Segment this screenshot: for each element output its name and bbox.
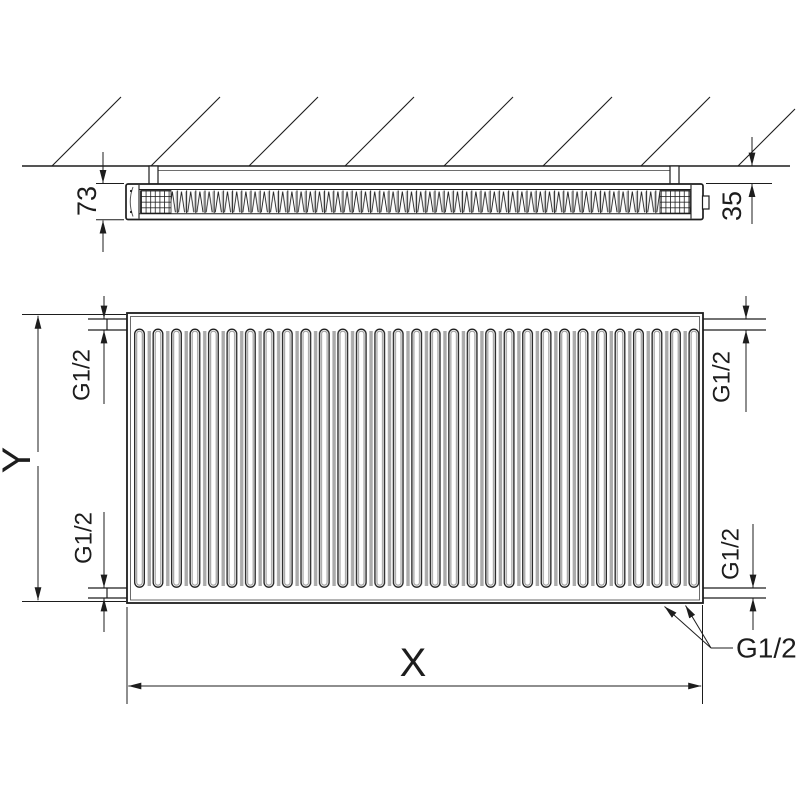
radiator-top-profile [126, 184, 709, 220]
thread-leader [665, 606, 734, 649]
dimension-wall-distance-label: 35 [717, 191, 747, 221]
thread-label-top-right: G1/2 [709, 351, 736, 403]
drawing-canvas: 73 35 [0, 0, 800, 800]
wall-hatching [52, 97, 795, 166]
top-view: 73 35 [22, 97, 795, 252]
radiator-technical-drawing: 73 35 [0, 0, 800, 800]
dimension-depth-label: 73 [72, 186, 102, 216]
thread-label-bottom-left: G1/2 [71, 512, 98, 564]
connection-stub-top-left [88, 319, 127, 330]
side-connection-stub [703, 196, 710, 209]
dimension-height-label: Y [0, 447, 39, 474]
convector-fins [140, 191, 691, 214]
clamp-grid-right [660, 191, 690, 214]
thread-label-bottom-right: G1/2 [718, 528, 745, 580]
connection-stub-bottom-left [88, 588, 127, 598]
connection-stub-bottom-right [703, 588, 766, 598]
dimension-width-label: X [400, 641, 427, 685]
thread-label-leader: G1/2 [736, 633, 797, 664]
thread-label-top-left: G1/2 [69, 349, 96, 401]
radiator-channels [134, 328, 700, 589]
mounting-bracket-right [670, 166, 679, 184]
clamp-grid-left [141, 191, 171, 214]
connection-stub-top-right [703, 319, 766, 330]
mounting-bracket-left [149, 166, 158, 184]
front-view: G1/2 G1/2 G1/2 G1/2 Y [0, 296, 797, 704]
